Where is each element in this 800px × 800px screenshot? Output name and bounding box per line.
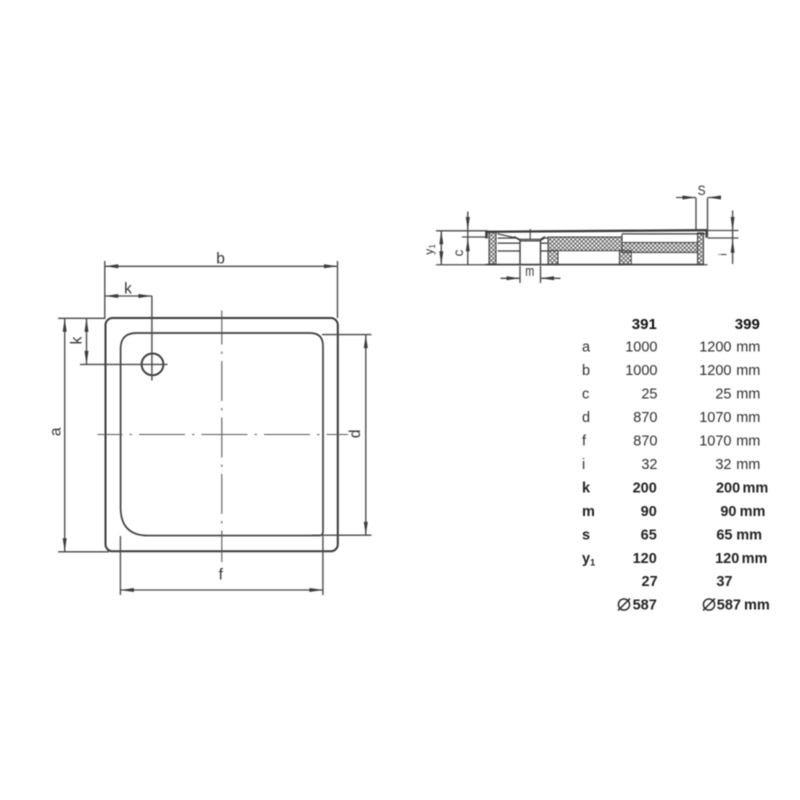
svg-text:b: b	[582, 363, 590, 379]
svg-text:200: 200	[633, 480, 657, 496]
svg-text:27: 27	[642, 574, 658, 590]
svg-text:y1: y1	[582, 551, 595, 568]
svg-text:1200: 1200	[699, 340, 731, 356]
svg-text:b: b	[216, 250, 225, 267]
svg-text:32: 32	[641, 457, 657, 473]
svg-text:y1: y1	[422, 244, 437, 255]
svg-text:mm: mm	[736, 363, 760, 379]
svg-text:32: 32	[715, 457, 731, 473]
svg-text:mm: mm	[736, 434, 760, 450]
svg-text:391: 391	[632, 316, 657, 333]
svg-text:S: S	[698, 182, 706, 198]
svg-text:k: k	[582, 480, 591, 496]
svg-text:c: c	[451, 249, 466, 256]
svg-text:200: 200	[716, 480, 740, 496]
svg-text:k: k	[68, 336, 85, 344]
svg-text:25: 25	[641, 387, 657, 403]
svg-text:s: s	[582, 527, 590, 543]
svg-text:f: f	[582, 434, 587, 450]
svg-text:d: d	[347, 429, 364, 438]
svg-text:mm: mm	[740, 504, 766, 520]
svg-text:37: 37	[716, 574, 732, 590]
svg-text:1070: 1070	[699, 410, 731, 426]
svg-text:mm: mm	[744, 598, 770, 614]
svg-text:i: i	[582, 457, 585, 473]
svg-text:65: 65	[716, 527, 732, 543]
svg-text:90: 90	[720, 504, 736, 520]
svg-text:mm: mm	[743, 480, 769, 496]
svg-text:mm: mm	[736, 387, 760, 403]
svg-text:i: i	[718, 253, 730, 255]
svg-text:399: 399	[735, 316, 760, 333]
svg-text:120: 120	[633, 551, 657, 567]
svg-text:120: 120	[715, 551, 739, 567]
svg-text:25: 25	[715, 387, 731, 403]
svg-text:mm: mm	[742, 551, 768, 567]
svg-text:1000: 1000	[625, 340, 657, 356]
svg-text:587: 587	[717, 598, 741, 614]
svg-text:587: 587	[633, 598, 657, 614]
svg-text:1200: 1200	[699, 363, 731, 379]
svg-text:mm: mm	[736, 457, 760, 473]
svg-text:a: a	[582, 340, 591, 356]
svg-text:870: 870	[633, 434, 657, 450]
svg-text:mm: mm	[736, 340, 760, 356]
svg-text:f: f	[219, 567, 224, 584]
svg-text:65: 65	[641, 527, 657, 543]
svg-text:mm: mm	[736, 527, 762, 543]
svg-text:d: d	[582, 410, 590, 426]
svg-text:1070: 1070	[699, 434, 731, 450]
svg-text:m: m	[582, 504, 595, 520]
svg-text:k: k	[124, 280, 132, 297]
svg-text:1000: 1000	[625, 363, 657, 379]
svg-text:a: a	[48, 427, 65, 436]
svg-text:c: c	[582, 387, 589, 403]
svg-text:870: 870	[633, 410, 657, 426]
svg-text:90: 90	[641, 504, 657, 520]
svg-text:m: m	[525, 263, 534, 280]
svg-text:mm: mm	[736, 410, 760, 426]
